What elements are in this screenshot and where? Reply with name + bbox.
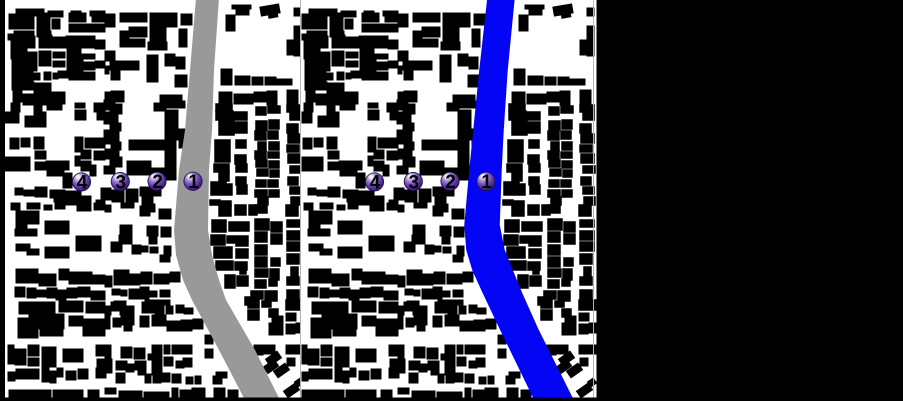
svg-text:4: 4 [77,173,88,194]
svg-text:3: 3 [116,172,127,193]
svg-text:1: 1 [188,172,199,193]
svg-text:1: 1 [481,172,492,193]
svg-text:4: 4 [370,173,381,194]
svg-text:2: 2 [445,172,456,193]
svg-text:3: 3 [409,172,420,193]
svg-text:2: 2 [152,172,163,193]
